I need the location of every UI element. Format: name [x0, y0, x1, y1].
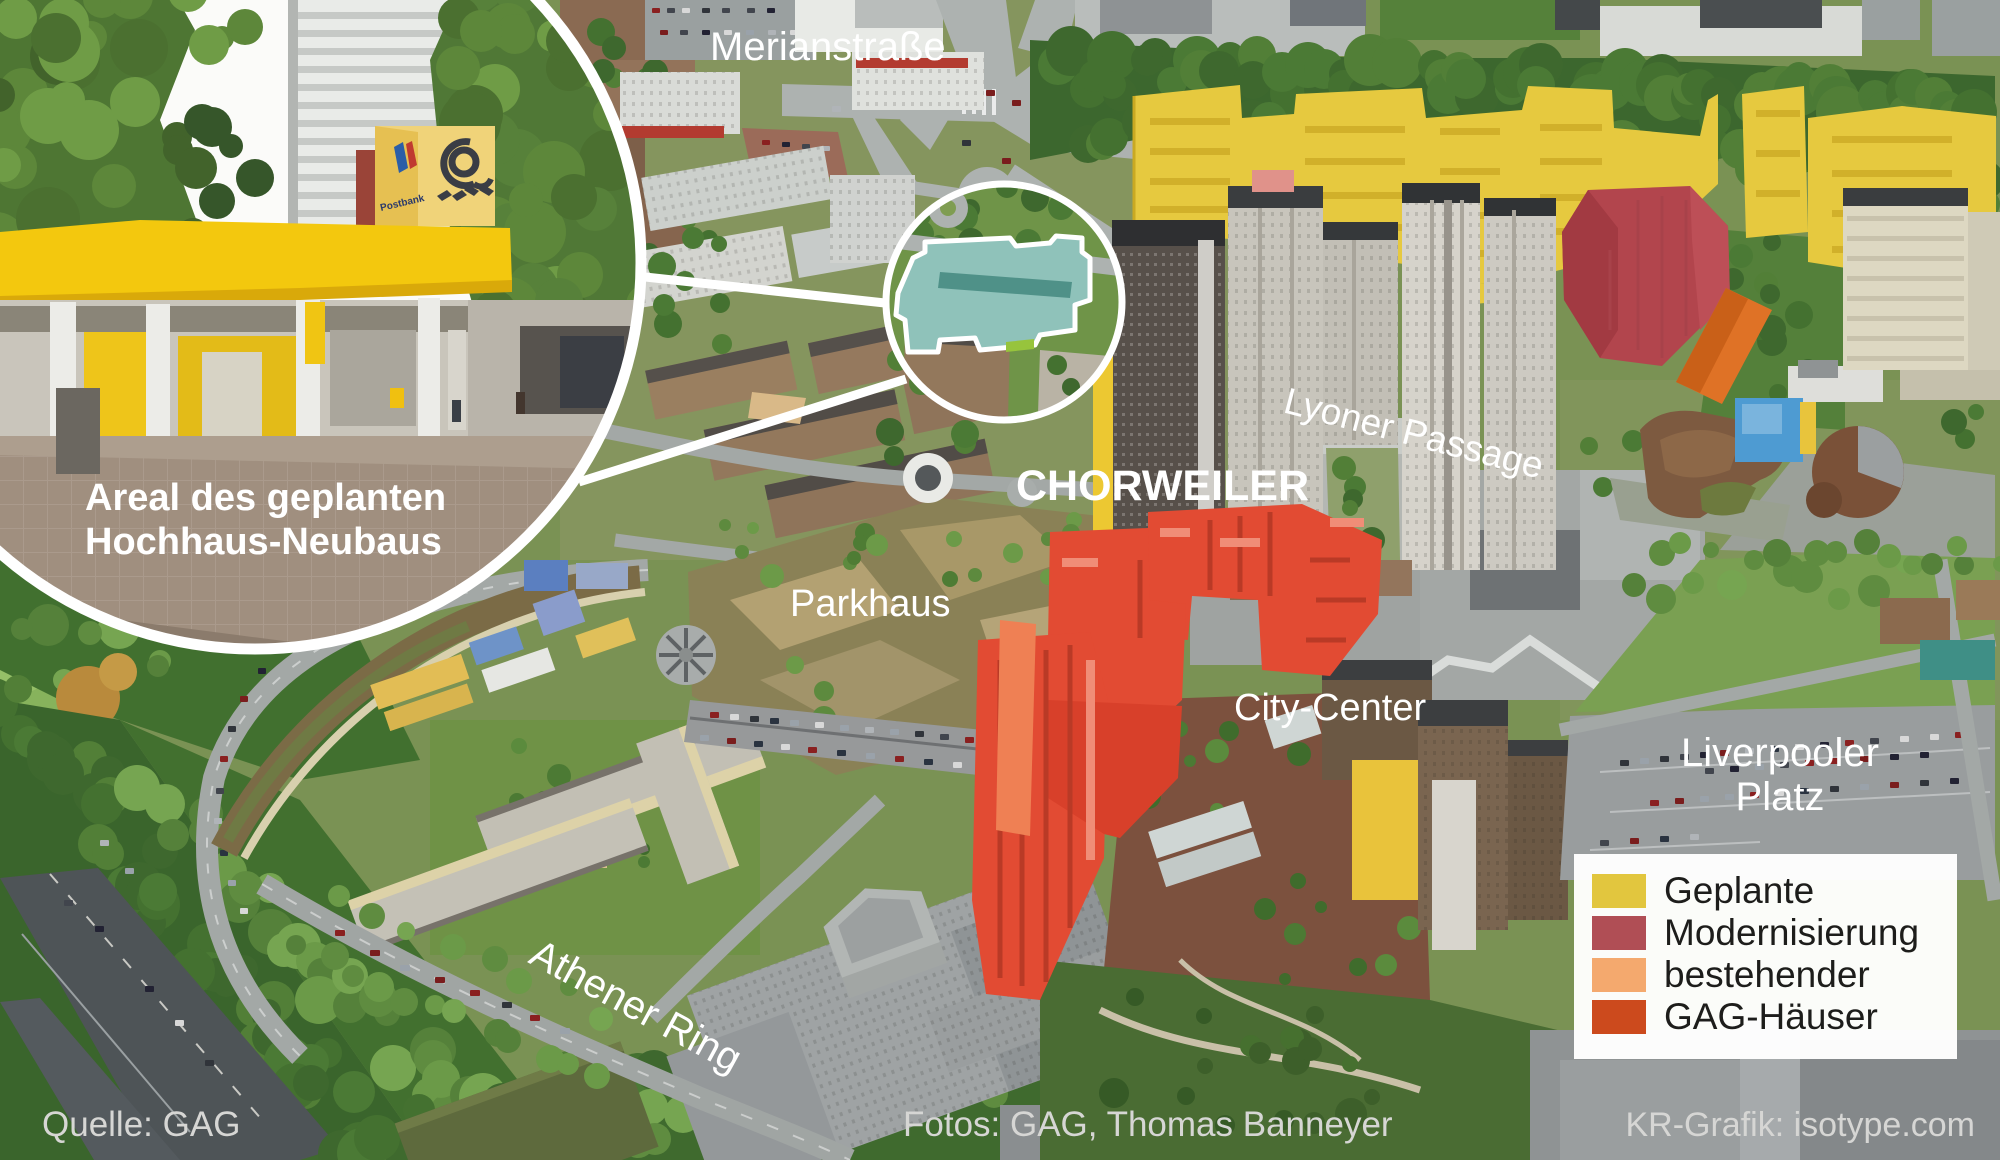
svg-text:Merianstraße: Merianstraße	[710, 25, 946, 69]
svg-text:bestehender: bestehender	[1664, 954, 1870, 995]
svg-text:Areal des geplanten: Areal des geplanten	[85, 477, 446, 519]
svg-text:Parkhaus: Parkhaus	[790, 583, 951, 625]
svg-text:KR-Grafik: isotype.com: KR-Grafik: isotype.com	[1625, 1106, 1975, 1144]
svg-text:Geplante: Geplante	[1664, 870, 1814, 911]
svg-text:City-Center: City-Center	[1234, 687, 1426, 729]
svg-text:Liverpooler: Liverpooler	[1681, 731, 1879, 775]
svg-text:Modernisierung: Modernisierung	[1664, 912, 1919, 953]
svg-text:Fotos: GAG, Thomas Banneyer: Fotos: GAG, Thomas Banneyer	[903, 1105, 1393, 1144]
svg-text:Quelle: GAG: Quelle: GAG	[42, 1105, 240, 1144]
svg-text:Hochhaus-Neubaus: Hochhaus-Neubaus	[85, 521, 442, 563]
svg-text:GAG-Häuser: GAG-Häuser	[1664, 996, 1878, 1037]
svg-text:CHORWEILER: CHORWEILER	[1016, 462, 1309, 510]
svg-text:Platz: Platz	[1736, 775, 1825, 819]
